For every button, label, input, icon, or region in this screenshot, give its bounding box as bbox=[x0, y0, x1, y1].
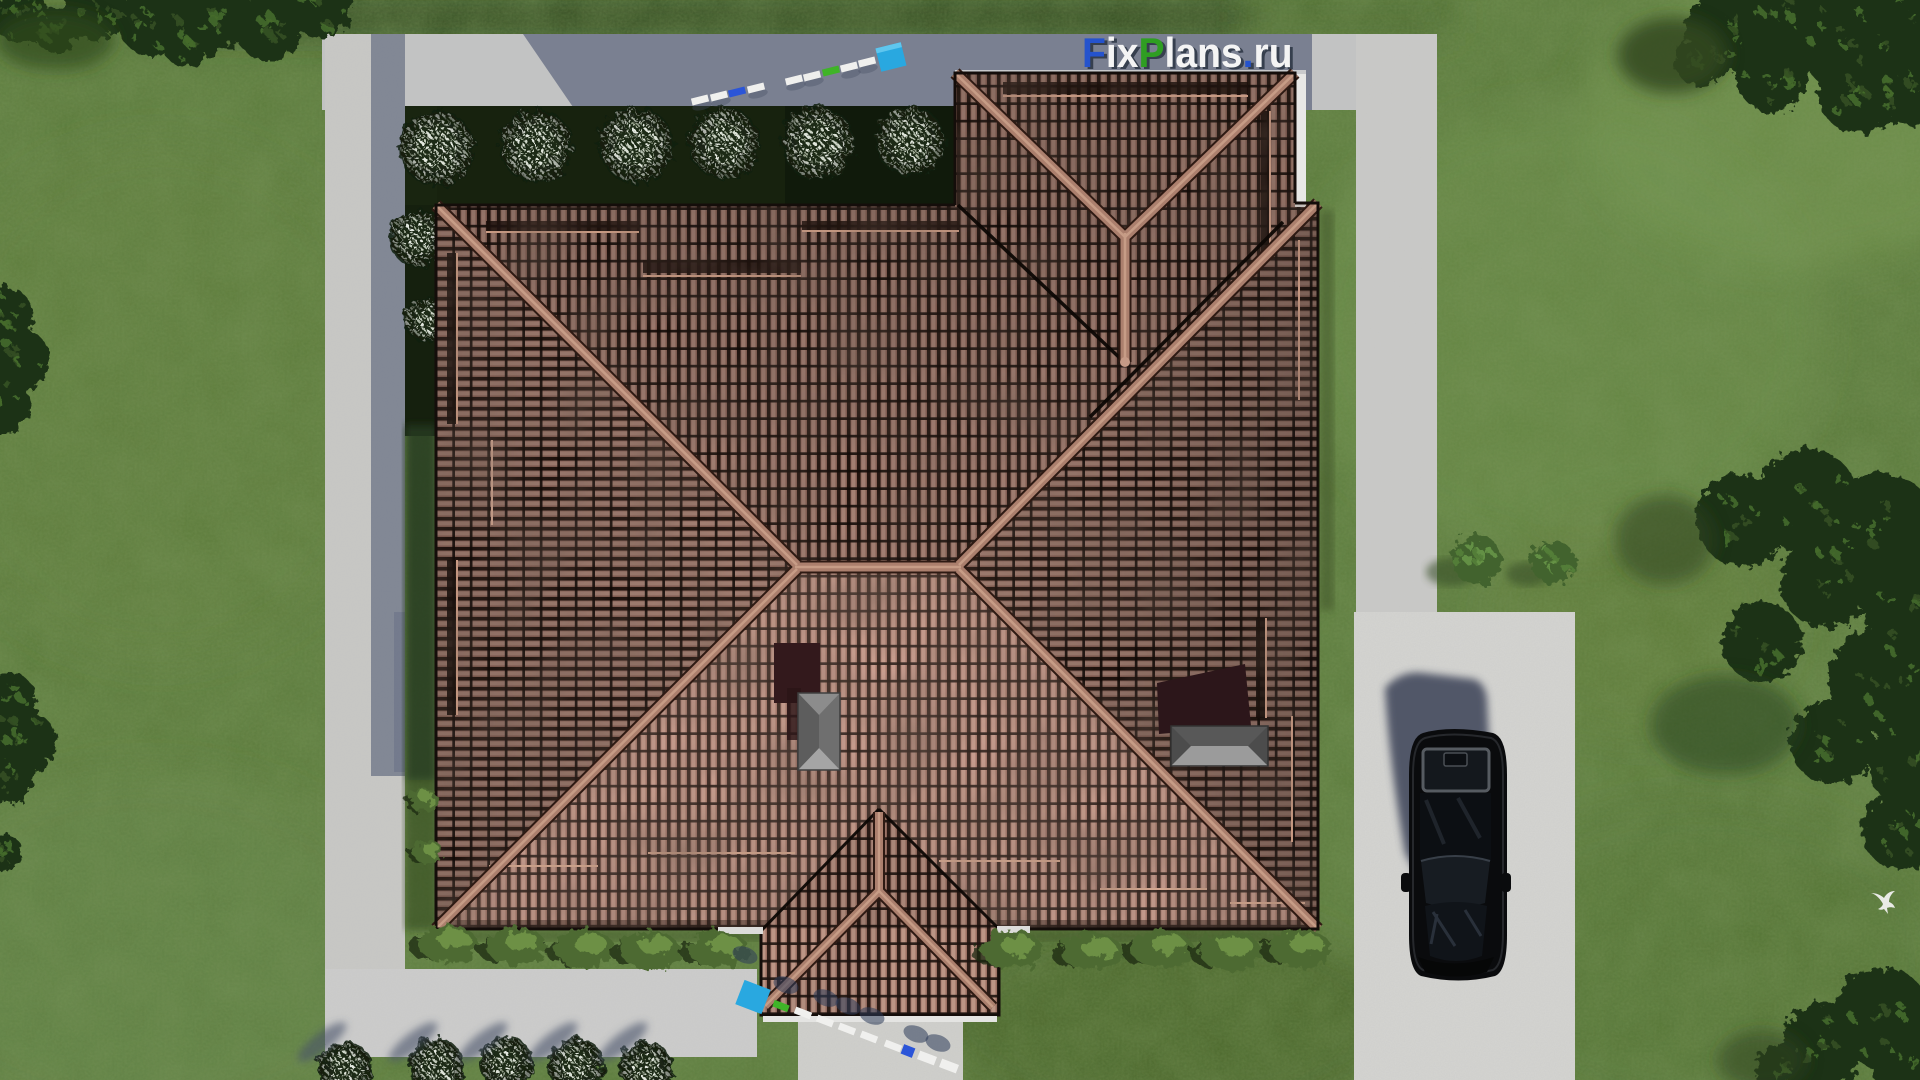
svg-text:FixPlans.ru: FixPlans.ru bbox=[1082, 29, 1293, 77]
